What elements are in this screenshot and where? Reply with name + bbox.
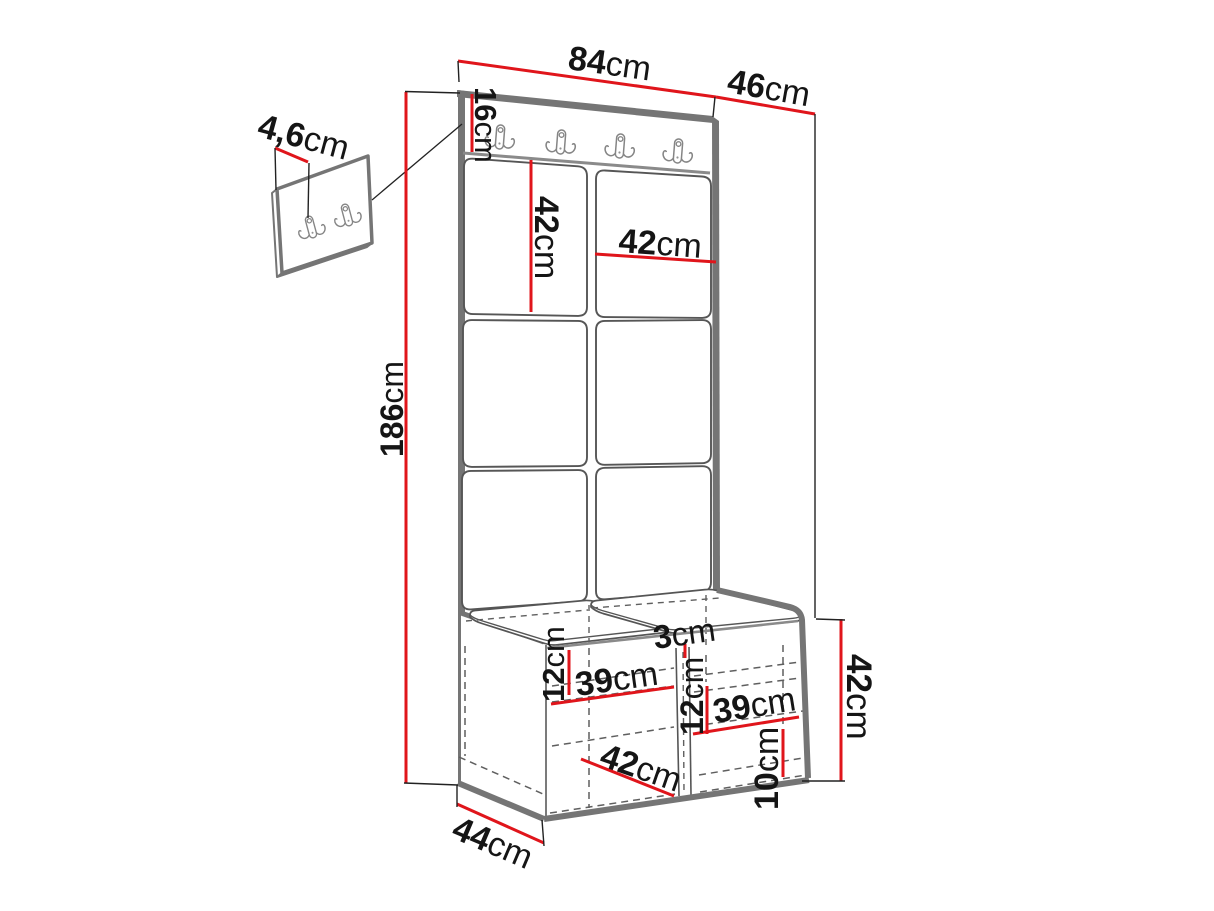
svg-text:16cm: 16cm bbox=[468, 87, 503, 163]
svg-text:42cm: 42cm bbox=[527, 196, 565, 279]
svg-text:186cm: 186cm bbox=[374, 361, 410, 457]
svg-text:42cm: 42cm bbox=[839, 654, 878, 740]
svg-text:10cm: 10cm bbox=[748, 727, 786, 810]
svg-text:12cm: 12cm bbox=[674, 657, 710, 735]
svg-text:42cm: 42cm bbox=[617, 222, 703, 266]
svg-text:12cm: 12cm bbox=[536, 626, 571, 702]
